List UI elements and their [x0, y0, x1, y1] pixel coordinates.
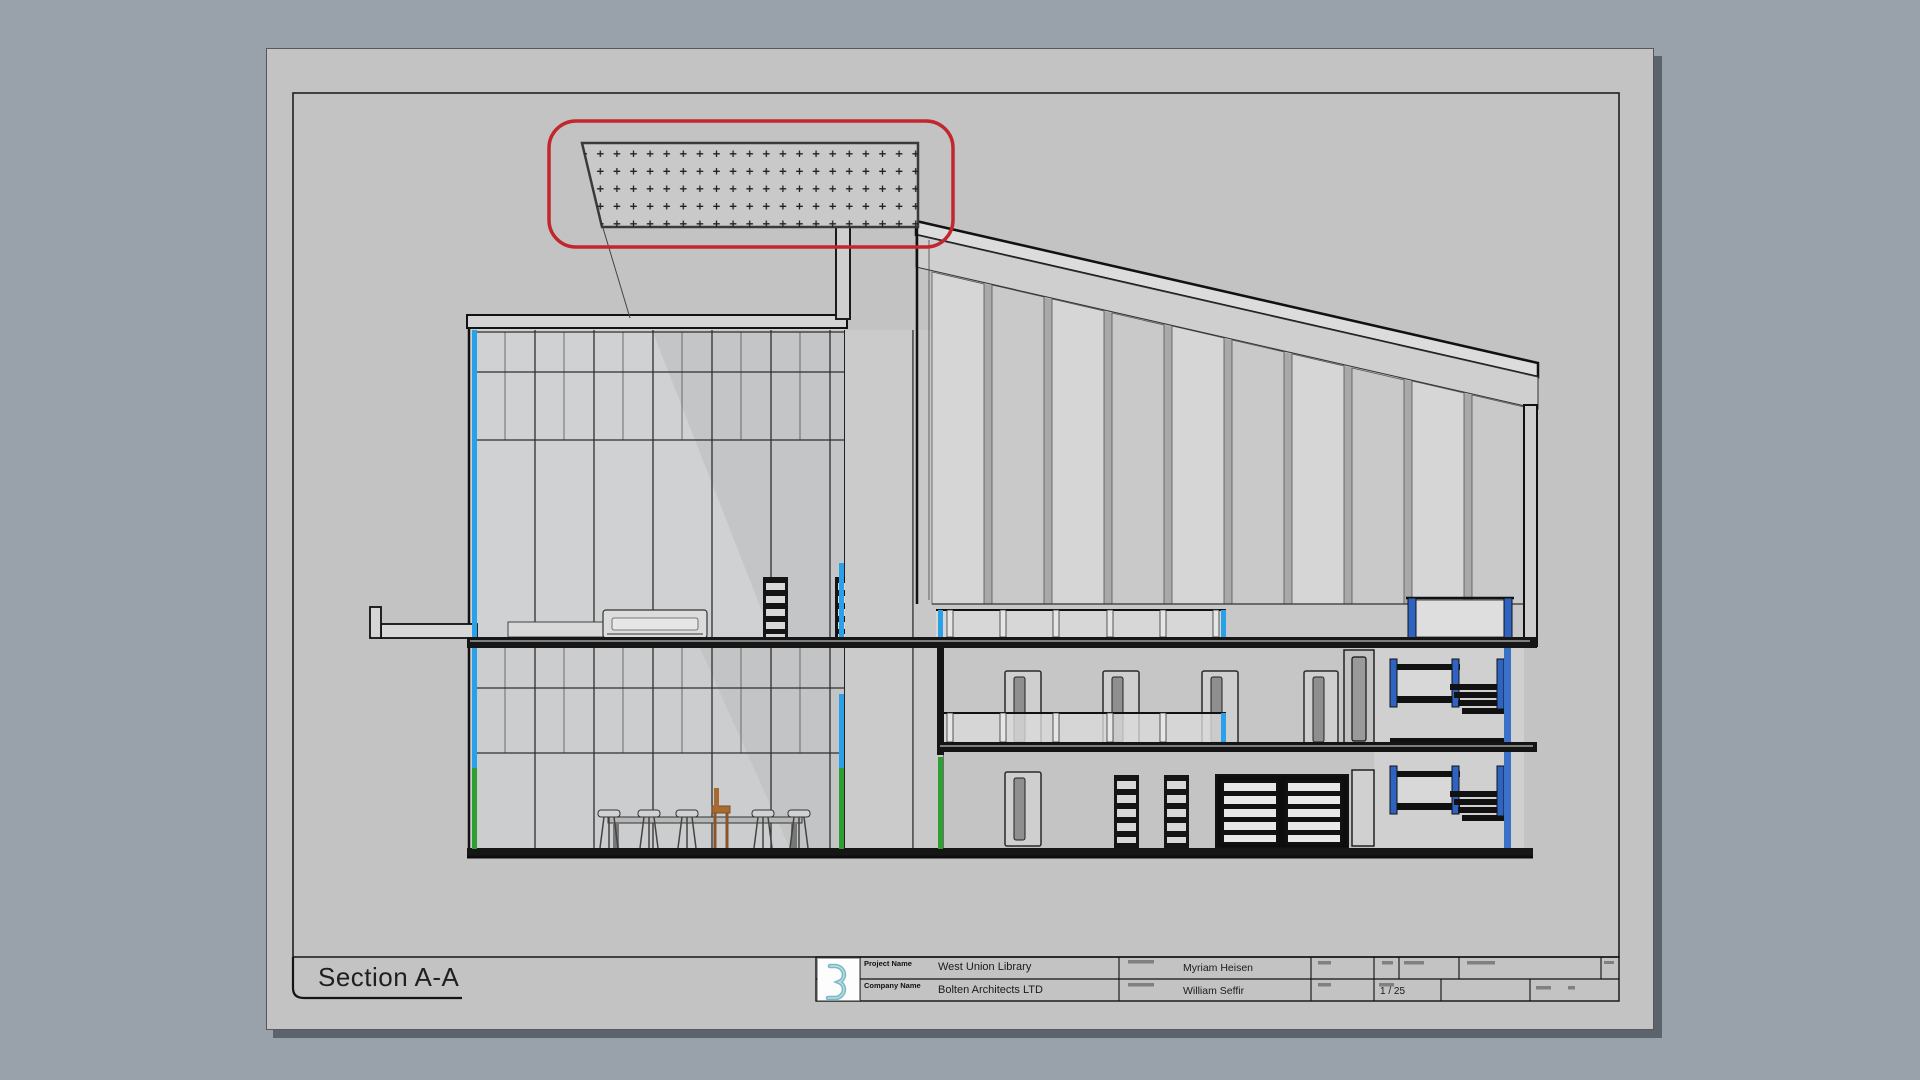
left-roof-slab	[467, 315, 847, 328]
book-tower	[763, 577, 788, 643]
cut-line-cyan	[472, 648, 477, 768]
application-canvas: Section A-A Project Name West Union Libr…	[0, 0, 1920, 1080]
view-title[interactable]: Section A-A	[318, 962, 459, 993]
shelf-unit	[1164, 775, 1189, 848]
level3-balustrade	[936, 610, 1226, 637]
right-wall	[1524, 405, 1537, 646]
leader-line	[603, 228, 630, 318]
wall-pier-door	[1344, 650, 1374, 743]
perforated-panel-pattern	[582, 143, 918, 227]
company-name-label: Company Name	[864, 981, 921, 990]
drawn-by-value[interactable]: William Seffir	[1183, 985, 1244, 997]
checked-by-value[interactable]: Myriam Heisen	[1183, 962, 1253, 974]
right-building-block	[916, 221, 1538, 857]
cut-line-green	[472, 768, 477, 849]
central-shaft	[836, 227, 944, 849]
detail-callout[interactable]	[582, 143, 918, 318]
cut-line-cyan	[938, 610, 943, 637]
project-name-value[interactable]: West Union Library	[938, 961, 1031, 973]
canopy-ledge	[370, 607, 477, 638]
scale-value[interactable]: 1 / 25	[1380, 986, 1405, 997]
mezzanine-balustrade	[1406, 598, 1514, 638]
cut-line-cyan	[839, 563, 844, 637]
company-name-value[interactable]: Bolten Architects LTD	[938, 984, 1043, 996]
cut-line-green	[938, 757, 943, 849]
left-building-block	[370, 315, 856, 857]
shelf-unit	[1114, 775, 1139, 848]
tall-cabinet	[1352, 770, 1374, 846]
section-drawing[interactable]	[0, 0, 1920, 1080]
project-name-label: Project Name	[864, 959, 912, 968]
cut-line-green	[839, 768, 844, 849]
ground-door	[1005, 772, 1041, 846]
locker-cabinets	[1216, 775, 1348, 848]
cut-line-cyan	[472, 330, 477, 637]
cut-line-cyan	[1221, 610, 1226, 637]
cut-line-cyan	[1221, 713, 1226, 742]
cut-line-cyan	[839, 694, 844, 768]
level2-railing	[944, 713, 1226, 742]
company-logo-icon	[818, 959, 860, 1001]
